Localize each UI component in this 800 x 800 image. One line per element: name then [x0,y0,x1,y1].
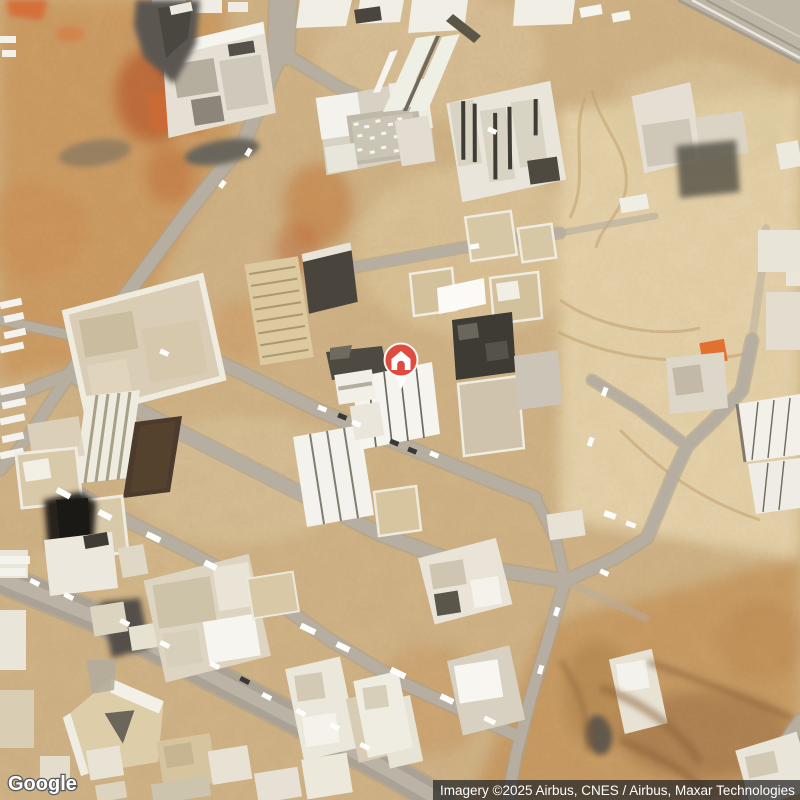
svg-text:Google: Google [8,773,77,795]
svg-text:Imagery ©2025 Airbus, CNES / A: Imagery ©2025 Airbus, CNES / Airbus, Max… [440,783,795,798]
